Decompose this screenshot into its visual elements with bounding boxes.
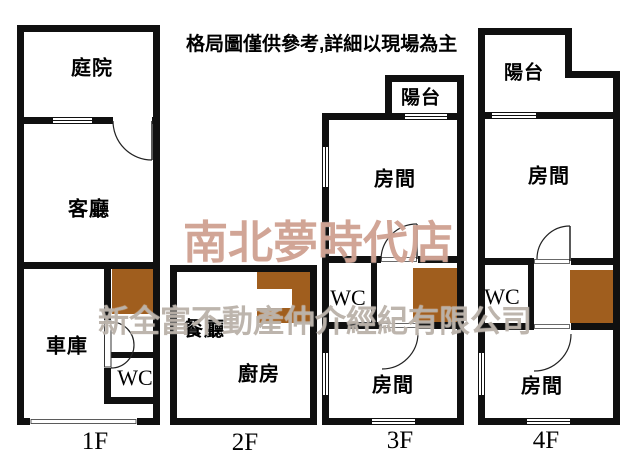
room-label-room-lower-3f: 房間 — [372, 369, 414, 398]
door-arc — [113, 121, 152, 160]
floor-label-1f: 1F — [82, 428, 108, 456]
room-label-wc-3f: WC — [330, 285, 365, 311]
floor-label-4f: 4F — [533, 427, 559, 455]
door-arc — [111, 322, 134, 368]
room-label-balcony-4f: 陽台 — [504, 58, 544, 85]
room-label-dining: 餐廳 — [183, 313, 225, 342]
door-threshold — [382, 324, 417, 328]
door-arc — [534, 334, 571, 371]
room-label-wc-1f: WC — [117, 365, 152, 391]
room-label-room-upper-4f: 房間 — [528, 160, 570, 189]
door-threshold — [535, 260, 570, 264]
room-label-wc-4f: WC — [484, 284, 519, 310]
room-label-living-room: 客廳 — [68, 193, 110, 222]
door-threshold — [382, 258, 417, 262]
floor-plan: 格局圖僅供參考,詳細以現場為主 庭院 客廳 車庫 WC 1F 餐廳 廚房 2F … — [0, 0, 640, 475]
room-label-room-lower-4f: 房間 — [521, 370, 563, 399]
room-label-kitchen: 廚房 — [238, 358, 280, 387]
room-label-balcony-3f: 陽台 — [401, 83, 441, 110]
garage-door-threshold — [31, 420, 136, 424]
door-arc — [382, 333, 418, 369]
floor-label-3f: 3F — [387, 427, 413, 455]
room-label-courtyard: 庭院 — [71, 52, 113, 81]
door-leaf — [105, 321, 112, 367]
room-label-room-upper-3f: 房間 — [374, 163, 416, 192]
door-arc — [537, 226, 570, 259]
room-label-garage: 車庫 — [46, 330, 88, 359]
floor-label-2f: 2F — [232, 429, 258, 457]
door-threshold — [535, 325, 570, 329]
door-arc — [381, 224, 417, 259]
